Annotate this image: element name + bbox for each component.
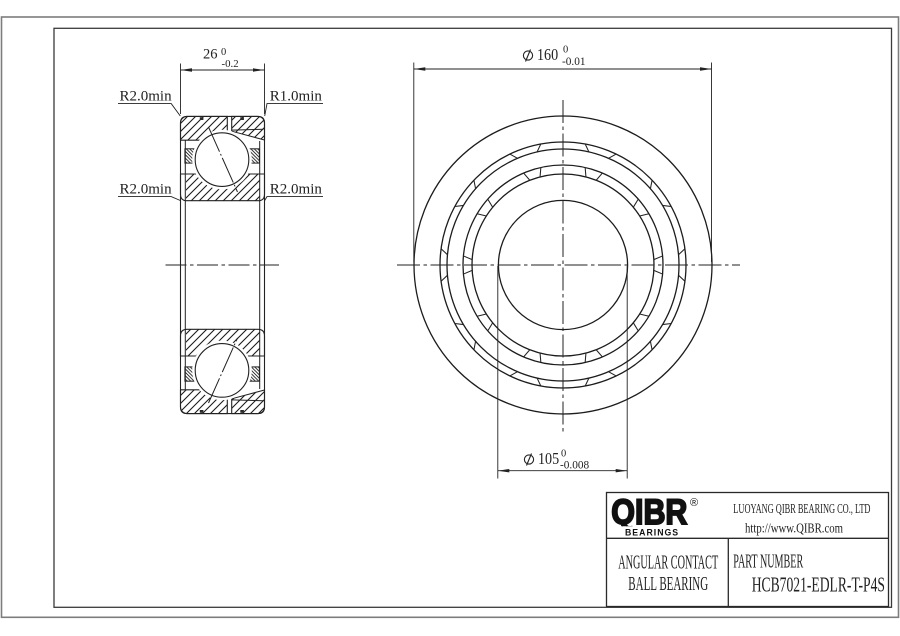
svg-text:R2.0min: R2.0min [120, 181, 173, 197]
svg-text:BEARINGS: BEARINGS [625, 527, 679, 537]
svg-text:BALL BEARING: BALL BEARING [628, 574, 708, 595]
svg-text:PART NUMBER: PART NUMBER [733, 551, 803, 572]
svg-text:0: 0 [563, 45, 568, 56]
svg-text:160: 160 [537, 46, 558, 64]
svg-text:http://www.QIBR.com: http://www.QIBR.com [745, 520, 843, 536]
svg-text:26: 26 [203, 47, 218, 63]
svg-text:QIBR: QIBR [611, 492, 687, 531]
svg-text:R2.0min: R2.0min [270, 181, 323, 197]
svg-text:0: 0 [221, 47, 226, 58]
svg-text:-0.2: -0.2 [222, 58, 239, 70]
svg-text:HCB7021-EDLR-T-P4S: HCB7021-EDLR-T-P4S [752, 573, 885, 597]
svg-text:105: 105 [538, 450, 559, 468]
svg-text:ANGULAR CONTACT: ANGULAR CONTACT [618, 552, 718, 573]
svg-text:-0.01: -0.01 [562, 56, 586, 68]
svg-text:-0.008: -0.008 [560, 460, 590, 472]
svg-text:R1.0min: R1.0min [270, 88, 323, 104]
svg-text:®: ® [690, 497, 698, 509]
svg-text:LUOYANG QIBR BEARING CO., LTD: LUOYANG QIBR BEARING CO., LTD [733, 502, 870, 516]
svg-text:R2.0min: R2.0min [120, 88, 173, 104]
svg-text:0: 0 [561, 449, 566, 460]
